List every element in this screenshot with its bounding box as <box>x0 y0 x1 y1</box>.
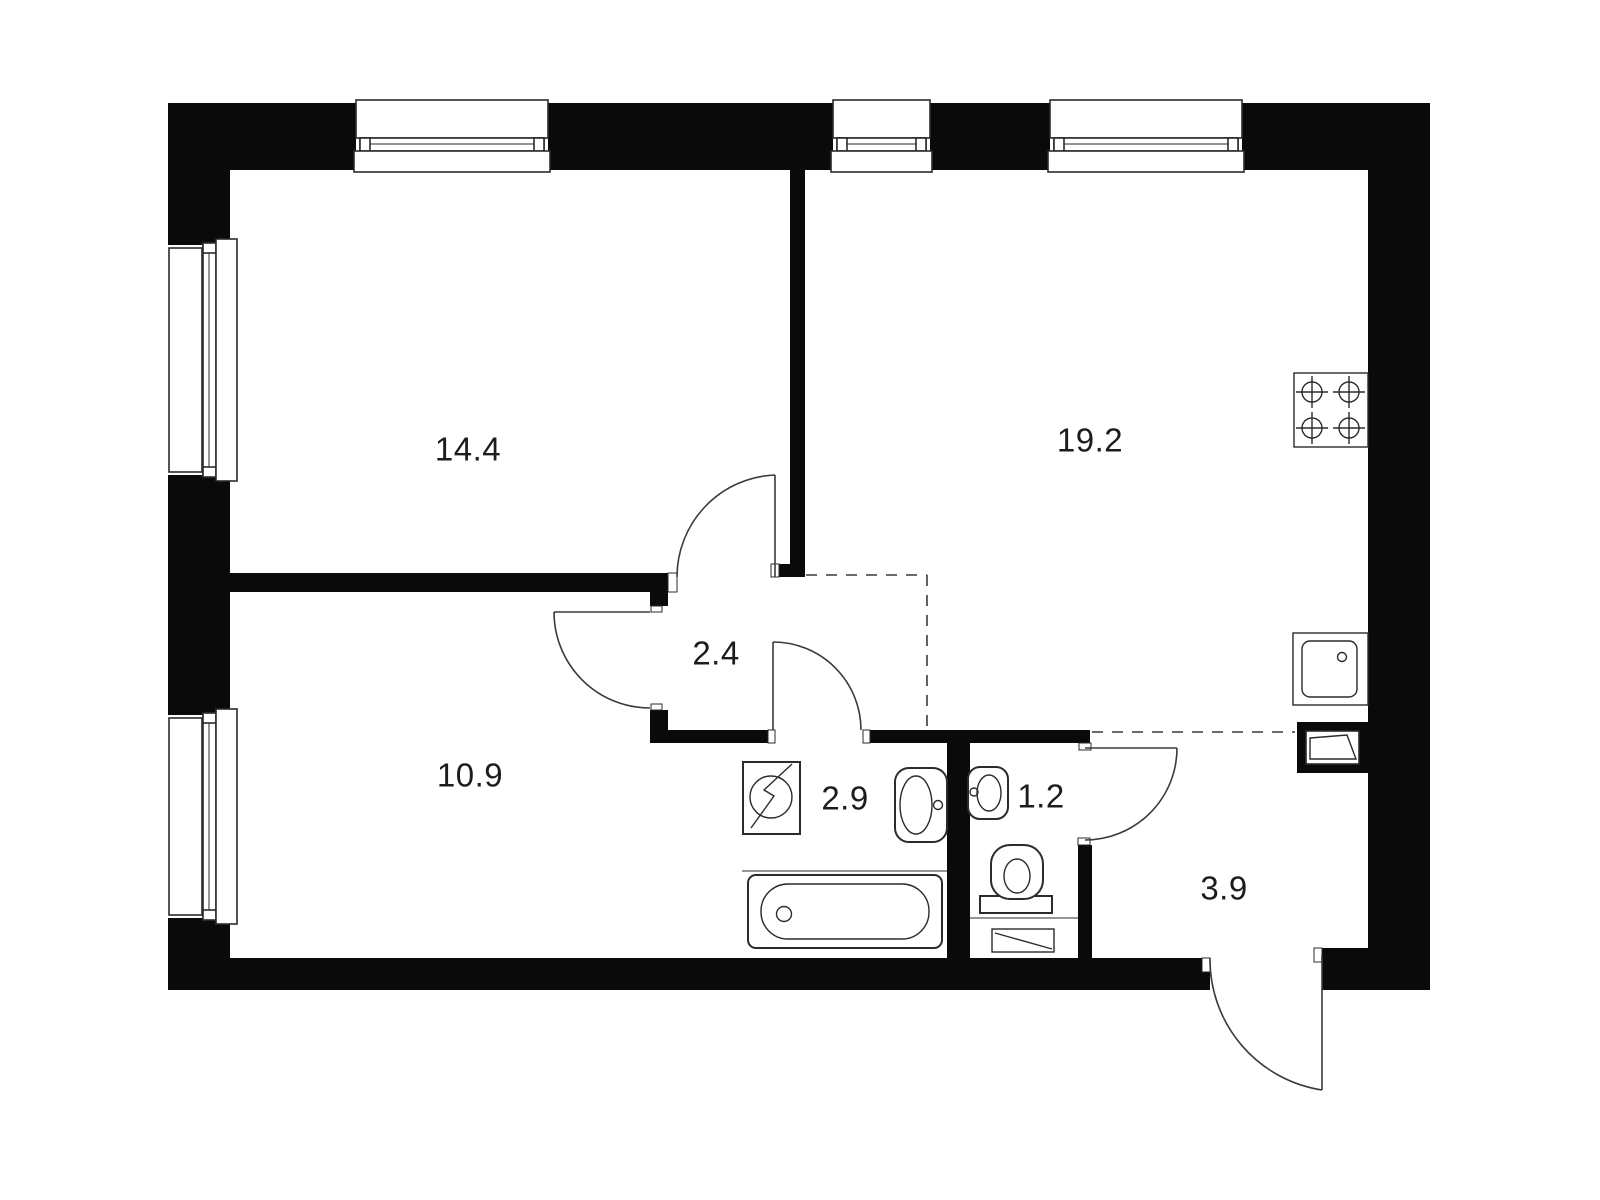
stove-icon <box>1294 373 1368 447</box>
door-wc <box>1085 748 1177 840</box>
wall-segment <box>168 958 1210 990</box>
room-labels: 14.4 19.2 2.4 10.9 2.9 1.2 3.9 <box>435 422 1248 907</box>
room-label-kitchen-living: 19.2 <box>1057 422 1123 459</box>
walls <box>168 103 1430 990</box>
wall-segment <box>1078 845 1092 958</box>
wall-segment <box>1322 948 1430 990</box>
wall-segment <box>947 743 970 958</box>
toilet-icon <box>980 845 1052 913</box>
room-label-entrance-hall: 3.9 <box>1200 870 1247 907</box>
wall-segment <box>779 564 805 577</box>
kitchen-sink-icon <box>1293 633 1368 705</box>
bathroom-sink-icon <box>895 768 947 842</box>
window-left-1 <box>169 239 237 481</box>
vent-shaft-icon <box>1306 731 1359 764</box>
room-label-wc: 1.2 <box>1017 778 1064 815</box>
window-top-2 <box>831 100 932 172</box>
floor-plan: 14.4 19.2 2.4 10.9 2.9 1.2 3.9 <box>0 0 1600 1200</box>
wall-segment <box>650 592 668 606</box>
room-label-hallway: 2.4 <box>692 635 739 672</box>
wall-segment <box>230 573 668 592</box>
window-top-1 <box>354 100 550 172</box>
room-label-living-room: 14.4 <box>435 431 501 468</box>
room-label-bedroom: 10.9 <box>437 757 503 794</box>
door-living-room <box>677 475 775 577</box>
wall-segment <box>790 170 805 572</box>
dashed-zone-line <box>806 575 1295 732</box>
wall-segment <box>650 730 768 743</box>
floor-plan-canvas: 14.4 19.2 2.4 10.9 2.9 1.2 3.9 <box>0 0 1600 1200</box>
entrance-door <box>1210 955 1322 1090</box>
wc-cabinet-icon <box>992 929 1054 952</box>
door-bathroom <box>773 642 861 730</box>
bathtub-icon <box>748 875 942 948</box>
window-left-2 <box>169 709 237 924</box>
door-bedroom <box>554 612 650 708</box>
wc-sink-icon <box>968 767 1008 819</box>
window-openings <box>168 103 1242 918</box>
wall-segment <box>870 730 1090 743</box>
room-label-bathroom: 2.9 <box>821 780 868 817</box>
window-top-3 <box>1048 100 1244 172</box>
washing-machine-icon <box>743 762 800 834</box>
wall-segment <box>1368 103 1430 990</box>
